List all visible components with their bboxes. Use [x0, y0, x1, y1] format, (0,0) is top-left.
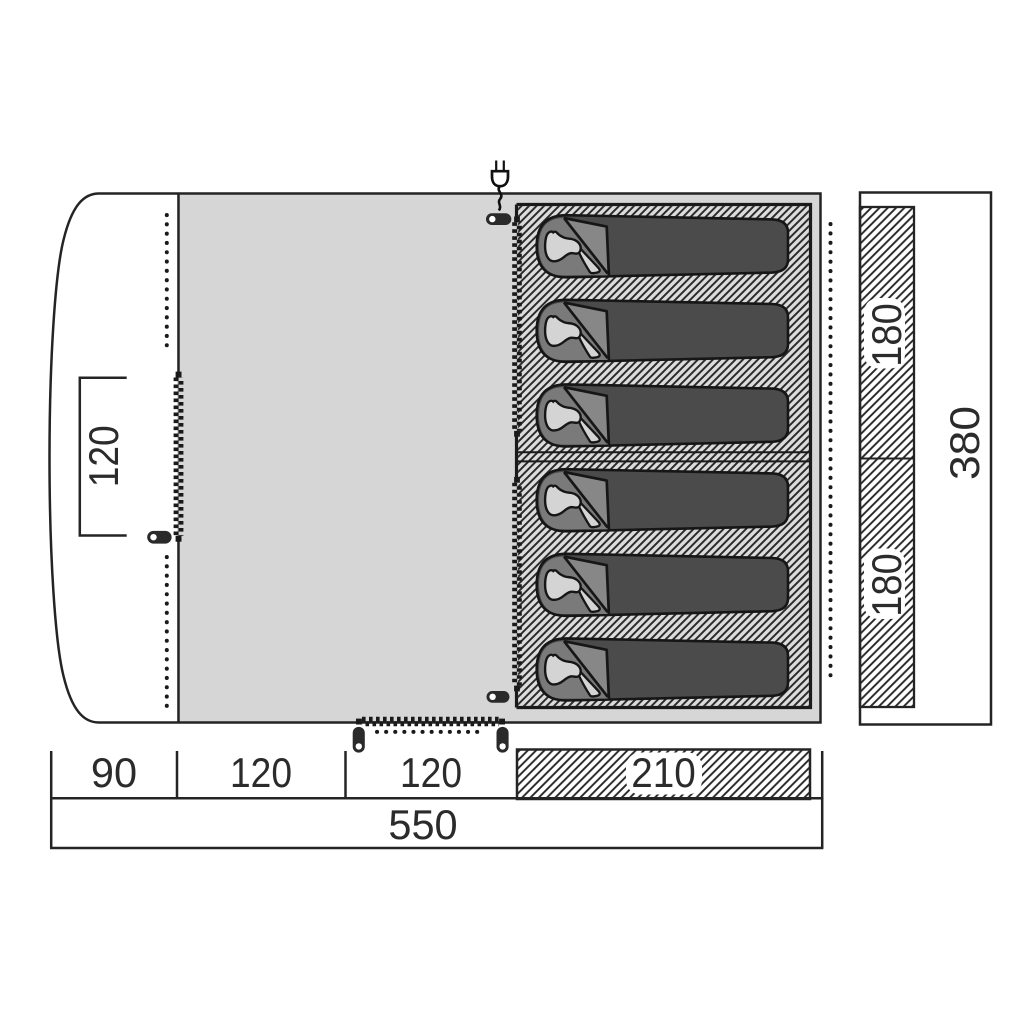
svg-text:550: 550	[388, 801, 457, 848]
svg-text:120: 120	[400, 749, 462, 796]
svg-text:180: 180	[863, 553, 910, 617]
svg-text:180: 180	[863, 303, 910, 367]
svg-text:120: 120	[80, 425, 127, 487]
svg-text:380: 380	[941, 406, 988, 480]
svg-text:210: 210	[631, 749, 696, 796]
svg-text:90: 90	[91, 749, 137, 796]
svg-text:120: 120	[230, 749, 292, 796]
